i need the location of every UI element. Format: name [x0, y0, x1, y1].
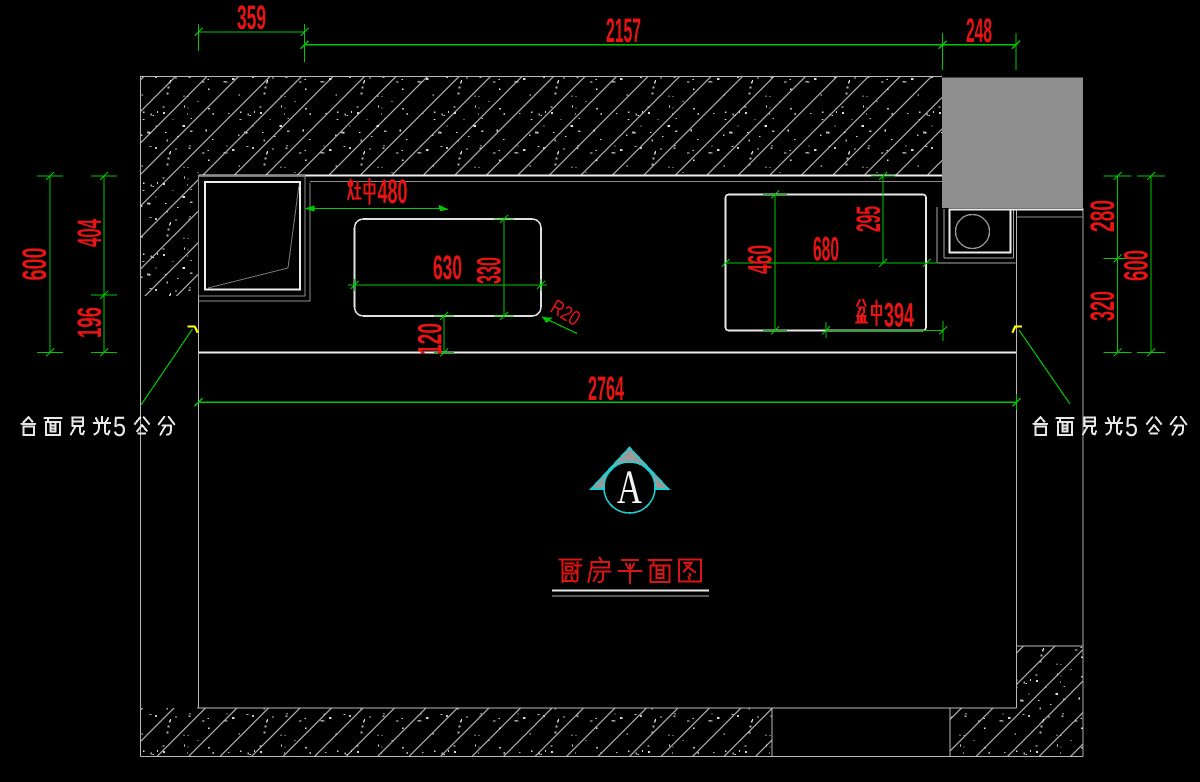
svg-text:480: 480: [378, 173, 408, 211]
svg-text:359: 359: [237, 0, 266, 37]
svg-text:248: 248: [966, 12, 992, 50]
svg-text:630: 630: [433, 249, 462, 287]
svg-text:2764: 2764: [588, 370, 624, 408]
svg-text:A: A: [617, 461, 642, 514]
svg-text:394: 394: [884, 297, 914, 335]
svg-text:196: 196: [71, 307, 109, 338]
svg-text:320: 320: [1084, 291, 1122, 321]
svg-text:600: 600: [1118, 250, 1156, 281]
svg-text:5: 5: [113, 411, 126, 442]
svg-text:330: 330: [471, 257, 509, 284]
svg-text:280: 280: [1084, 200, 1122, 232]
svg-text:600: 600: [16, 248, 54, 281]
svg-text:120: 120: [412, 323, 450, 355]
svg-text:680: 680: [813, 231, 839, 269]
svg-text:460: 460: [742, 245, 780, 274]
svg-text:2157: 2157: [606, 12, 641, 50]
svg-text:404: 404: [71, 219, 109, 247]
svg-text:5: 5: [1125, 411, 1138, 442]
svg-text:295: 295: [850, 206, 888, 232]
